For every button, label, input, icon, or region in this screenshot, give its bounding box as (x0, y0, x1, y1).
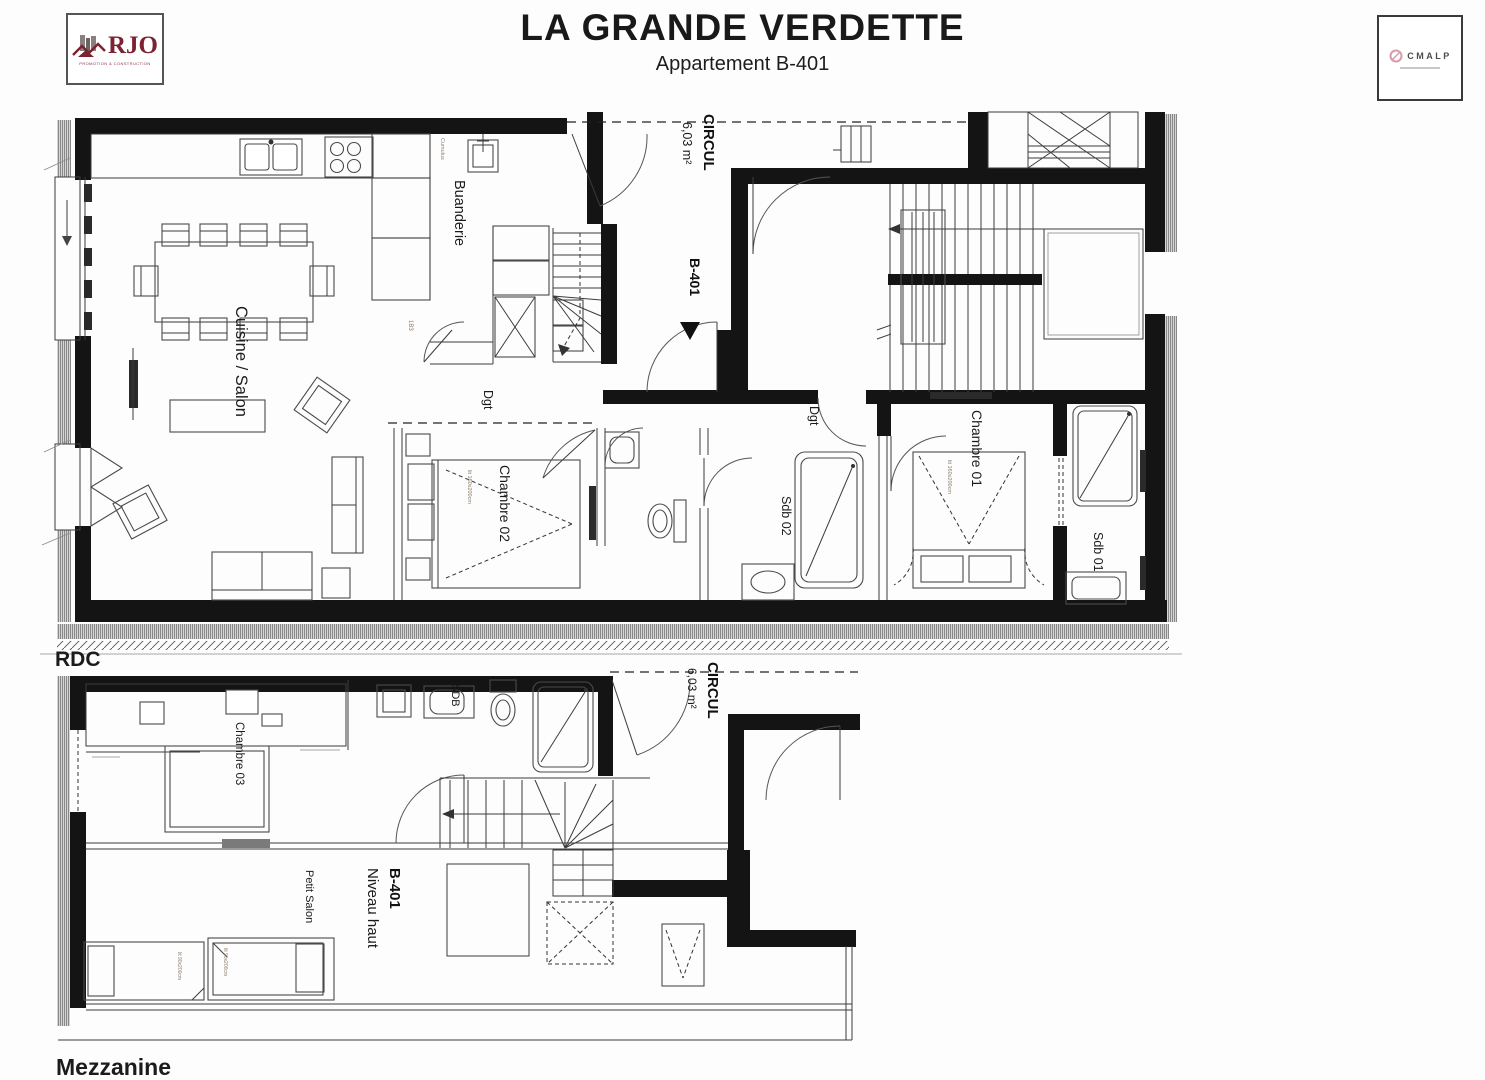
shower-icon (533, 682, 593, 772)
unit-label: B-401 (687, 258, 703, 296)
room-label-circul-mezz: CIRCUL (704, 662, 721, 719)
room-label-circul: CIRCUL (700, 114, 717, 171)
page-title: LA GRANDE VERDETTE (0, 8, 1485, 49)
bed-size-tag: lit 90x200cm (176, 952, 182, 980)
doors-mezz (612, 680, 840, 800)
bed-icon (165, 746, 269, 832)
logo-rjo: RJO PROMOTION & CONSTRUCTION (66, 13, 164, 85)
entry-door-arc-icon (600, 134, 647, 206)
toilet-icon (648, 500, 686, 542)
door-arc-icon (766, 726, 840, 800)
room-label-sdb: SDB (449, 684, 461, 707)
door-arc-icon (753, 177, 830, 254)
cmalp-ring-icon (1388, 48, 1404, 64)
door-arc-icon (396, 775, 464, 843)
walls-mezzanine (70, 672, 860, 1008)
door-code-tag: 1B3 (407, 320, 413, 331)
duct-icon (495, 297, 535, 357)
logo-cmalp: CMALP (1377, 15, 1463, 101)
floor-plan-rdc: Cuisine / Salon Buanderie CIRCUL 6,03 m²… (40, 112, 1182, 671)
bed-size-tag: lit 160x200cm (466, 470, 472, 504)
single-beds (84, 938, 334, 1000)
wardrobe-swing (894, 548, 913, 585)
room-label-dgt: Dgt (807, 406, 821, 426)
room-label-chambre03: Chambre 03 (233, 722, 245, 785)
bed-size-tag: lit 90x200cm (222, 948, 228, 976)
exterior-hatch-bands-mezz (57, 676, 70, 1026)
door-arc-icon (818, 398, 866, 446)
floorplan-sheet: LA GRANDE VERDETTE Appartement B-401 RJO… (0, 0, 1485, 1080)
door-arc-icon (647, 322, 717, 392)
mezz-divider (86, 775, 728, 849)
door-arc-icon (891, 436, 946, 491)
armchair-icon (294, 377, 350, 433)
cmalp-tagline-bar (1400, 67, 1440, 69)
armchair-icon (113, 485, 167, 539)
rjo-logo-text: RJO (108, 33, 158, 58)
labels-mezzanine: Chambre 03 SDB CIRCUL 6,03 m² Petit Salo… (56, 662, 721, 1080)
room-area-circul-mezz: 6,03 m² (685, 668, 699, 709)
bathroom-02 (742, 452, 863, 600)
room-label-dgt: Dgt (481, 390, 495, 410)
kitchen (91, 134, 430, 300)
bathroom-01 (1066, 406, 1146, 604)
room-label-sdb02: Sdb 02 (779, 496, 793, 536)
page-subtitle: Appartement B-401 (0, 53, 1485, 76)
title-block: LA GRANDE VERDETTE Appartement B-401 (0, 8, 1485, 76)
washbasin-icon (742, 564, 794, 600)
room-label-sdb01: Sdb 01 (1091, 532, 1105, 572)
duplex-stairs-rdc (553, 228, 601, 362)
bedroom-01 (894, 392, 1044, 588)
roof-window-icon (662, 924, 704, 986)
water-heater-tag: Cumulus (439, 138, 445, 160)
shower-icon (1073, 406, 1137, 506)
common-stairs-icon (877, 184, 1143, 392)
bed-icon (408, 460, 580, 588)
rjo-building-icon (72, 33, 106, 59)
room-label-chambre02: Chambre 02 (497, 465, 513, 542)
plan-caption-rdc: RDC (55, 648, 101, 671)
tall-cabinets (372, 134, 430, 300)
plan-caption-mezzanine: Mezzanine (56, 1054, 171, 1080)
laundry-room (424, 134, 583, 364)
cmalp-logo-text: CMALP (1407, 51, 1452, 61)
sink-icon (240, 139, 302, 175)
room-label-buanderie: Buanderie (451, 180, 467, 246)
door-arc-icon (704, 458, 752, 506)
bed-icon (84, 942, 204, 1000)
rjo-tagline: PROMOTION & CONSTRUCTION (79, 61, 150, 66)
void-opening (547, 902, 613, 964)
bathtub-icon (795, 452, 863, 588)
bedroom-03 (165, 746, 269, 832)
floor-plan-mezzanine: Chambre 03 SDB CIRCUL 6,03 m² Petit Salo… (56, 662, 860, 1080)
wardrobe-swing (1025, 548, 1044, 585)
plan-canvas: Cuisine / Salon Buanderie CIRCUL 6,03 m²… (0, 0, 1485, 1080)
unit-label-mezz: B-401 (386, 868, 403, 909)
void-square (447, 864, 529, 956)
side-table (322, 568, 350, 598)
sliding-door-icon (1059, 458, 1063, 526)
radiator-icon (930, 392, 992, 399)
common-landing (567, 112, 1138, 168)
room-label-petit-salon: Petit Salon (303, 870, 315, 923)
bed-icon (913, 452, 1025, 588)
wc (605, 432, 686, 542)
sofa-icon (212, 552, 312, 600)
room-label-chambre01: Chambre 01 (969, 410, 985, 487)
sofa-icon (332, 457, 363, 553)
bed-size-tag: lit 160x200cm (946, 460, 952, 494)
level-label: Niveau haut (364, 868, 381, 949)
room-label-cuisine-salon: Cuisine / Salon (232, 306, 250, 417)
door-arc-icon (605, 428, 643, 466)
stove-icon (325, 137, 373, 177)
bathroom-mezz (377, 680, 593, 772)
door-arc-icon (637, 680, 690, 755)
room-area-circul: 6,03 m² (680, 122, 694, 164)
